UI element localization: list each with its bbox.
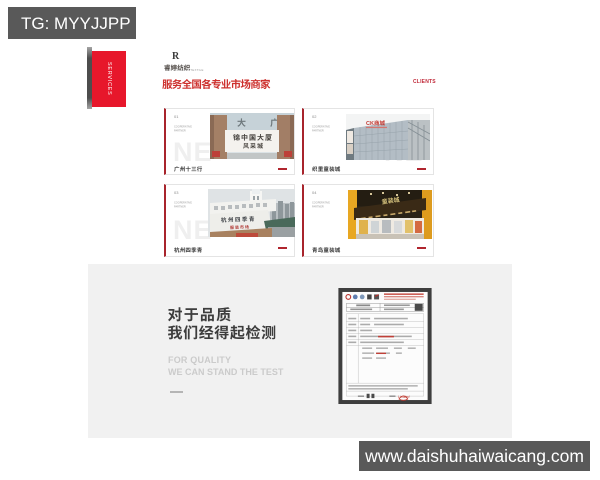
svg-text:锦中国大厦: 锦中国大厦 (233, 134, 273, 142)
svg-text:Limited: Limited (398, 395, 410, 399)
svg-text:大: 大 (237, 118, 246, 128)
svg-text:CK商城: CK商城 (366, 120, 385, 127)
svg-text:杭州四季青: 杭州四季青 (221, 216, 256, 224)
svg-text:服装市场: 服装市场 (230, 224, 250, 230)
svg-text:风采城: 风采城 (243, 142, 264, 150)
